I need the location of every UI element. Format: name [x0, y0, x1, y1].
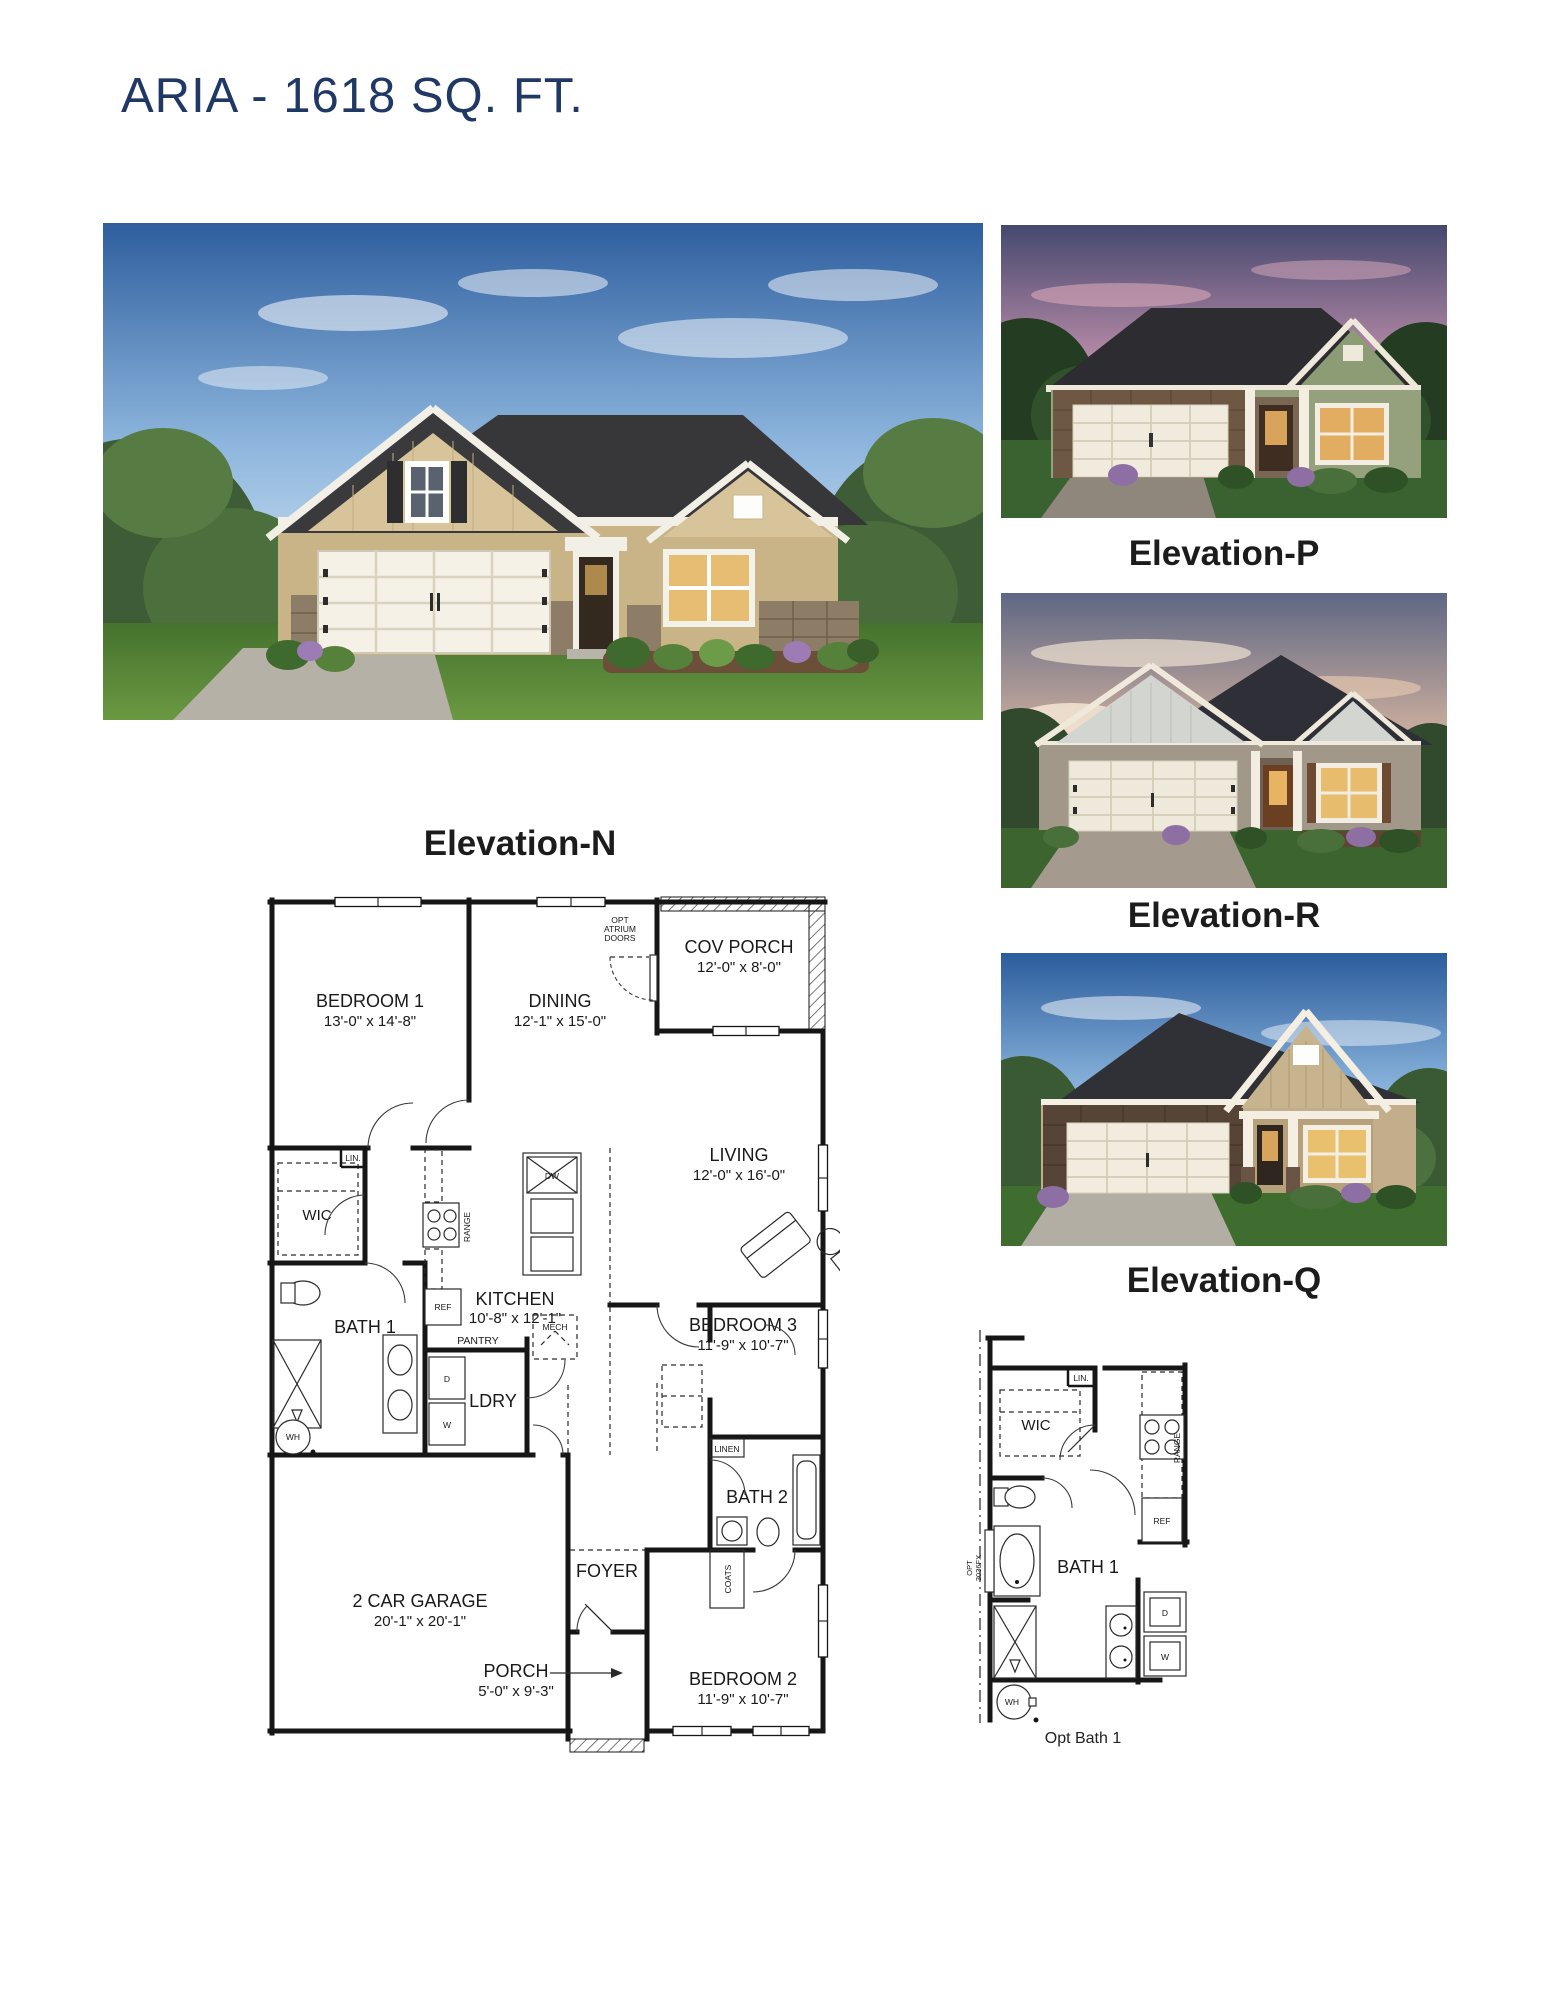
ref-label: REF	[435, 1302, 452, 1312]
bath2-label: BATH 2	[726, 1487, 788, 1507]
living-label: LIVING	[709, 1145, 768, 1165]
porch-arrow	[550, 1668, 623, 1678]
opt-hall-door-arc	[1090, 1470, 1135, 1515]
laundry-fixtures	[429, 1357, 465, 1445]
elevation-p-rendering	[1001, 225, 1447, 518]
main-elevation-photo	[103, 223, 983, 720]
wh-label: WH	[286, 1432, 300, 1442]
opt-bath1-plan: WIC LIN. RANGE REF OPT 3036FX BATH 1	[950, 1330, 1190, 1725]
opt-washer-label: W	[1161, 1652, 1169, 1662]
bath1-label: BATH 1	[334, 1317, 396, 1337]
opt-vanity	[1106, 1606, 1136, 1678]
opt-fixture-l1: OPT	[965, 1560, 974, 1576]
bath1-fixtures	[273, 1281, 417, 1433]
porch-label: PORCH	[483, 1661, 548, 1681]
svg-text:DOORS: DOORS	[604, 933, 636, 943]
opt-bath1-caption: Opt Bath 1	[983, 1730, 1183, 1748]
opt-bath1-label: BATH 1	[1057, 1557, 1119, 1577]
opt-toilet	[994, 1478, 1072, 1508]
range-label: RANGE	[462, 1212, 472, 1243]
opt-range-label: RANGE	[1172, 1433, 1182, 1464]
opt-tub	[985, 1526, 1040, 1596]
living-dims: 12'-0" x 16'-0"	[693, 1167, 785, 1184]
shutter-left	[387, 461, 403, 523]
bedroom3-label: BEDROOM 3	[689, 1315, 797, 1335]
opt-lin-label: LIN.	[1073, 1373, 1089, 1383]
garage-label: 2 CAR GARAGE	[352, 1591, 487, 1611]
opt-atrium-doors: OPT ATRIUM DOORS	[604, 915, 657, 1001]
elevation-q-photo	[1001, 953, 1447, 1246]
opt-bath1-drawing: WIC LIN. RANGE REF OPT 3036FX BATH 1	[950, 1330, 1190, 1725]
opt-wic-label: WIC	[1021, 1417, 1050, 1434]
kitchen-label: KITCHEN	[475, 1289, 554, 1309]
dining-label: DINING	[529, 991, 592, 1011]
opt-fixture-l2: 3036FX	[974, 1555, 983, 1581]
opt-ref-label: REF	[1154, 1516, 1171, 1526]
dashed-lines	[568, 1148, 702, 1550]
elevation-n-label: Elevation-N	[320, 824, 720, 864]
elevation-r-rendering	[1001, 593, 1447, 888]
elevation-r-photo	[1001, 593, 1447, 888]
shutter-right	[1382, 763, 1391, 823]
coats-label: COATS	[723, 1564, 733, 1593]
garage-dims: 20'-1" x 20'-1"	[374, 1613, 466, 1630]
ldry-label: LDRY	[469, 1391, 517, 1411]
elevation-r-label: Elevation-R	[1001, 896, 1447, 936]
lin-label: LIN.	[345, 1153, 361, 1163]
page-title: ARIA - 1618 SQ. FT.	[121, 68, 584, 124]
bedroom1-dims: 13'-0" x 14'-8"	[324, 1013, 416, 1030]
opt-wh-label: WH	[1005, 1697, 1019, 1707]
washer-label: W	[443, 1420, 451, 1430]
elevation-q-label: Elevation-Q	[1001, 1261, 1447, 1301]
floor-plan-drawing: BEDROOM 1 13'-0" x 14'-8" DINING 12'-1" …	[265, 895, 840, 1755]
dw-label: DW	[545, 1171, 559, 1181]
elevation-p-label: Elevation-P	[1001, 534, 1447, 574]
dryer-label: D	[444, 1374, 450, 1384]
dining-dims: 12'-1" x 15'-0"	[514, 1013, 606, 1030]
shutter-right	[451, 461, 467, 523]
mech-label: MECH	[542, 1322, 567, 1332]
elevation-p-photo	[1001, 225, 1447, 518]
front-door	[577, 1604, 613, 1632]
main-floor-plan: BEDROOM 1 13'-0" x 14'-8" DINING 12'-1" …	[265, 895, 840, 1755]
opt-dryer-label: D	[1162, 1608, 1168, 1618]
elevation-n-rendering	[103, 223, 983, 720]
cov-porch-label: COV PORCH	[684, 937, 793, 957]
elevation-q-rendering	[1001, 953, 1447, 1246]
cov-porch-dims: 12'-0" x 8'-0"	[697, 959, 781, 976]
bedroom3-dims: 11'-9" x 10'-7"	[697, 1337, 788, 1354]
bedroom2-label: BEDROOM 2	[689, 1669, 797, 1689]
porch-dims: 5'-0" x 9'-3"	[478, 1683, 554, 1700]
opt-laundry	[1144, 1592, 1186, 1676]
shutter-left	[1307, 763, 1316, 823]
wic-closet	[278, 1148, 365, 1255]
linen-label: LINEN	[714, 1444, 739, 1454]
foyer-label: FOYER	[576, 1561, 638, 1581]
bedroom2-dims: 11'-9" x 10'-7"	[697, 1691, 788, 1708]
pantry-label: PANTRY	[457, 1335, 499, 1347]
opt-shower	[994, 1606, 1036, 1678]
bedroom1-label: BEDROOM 1	[316, 991, 424, 1011]
